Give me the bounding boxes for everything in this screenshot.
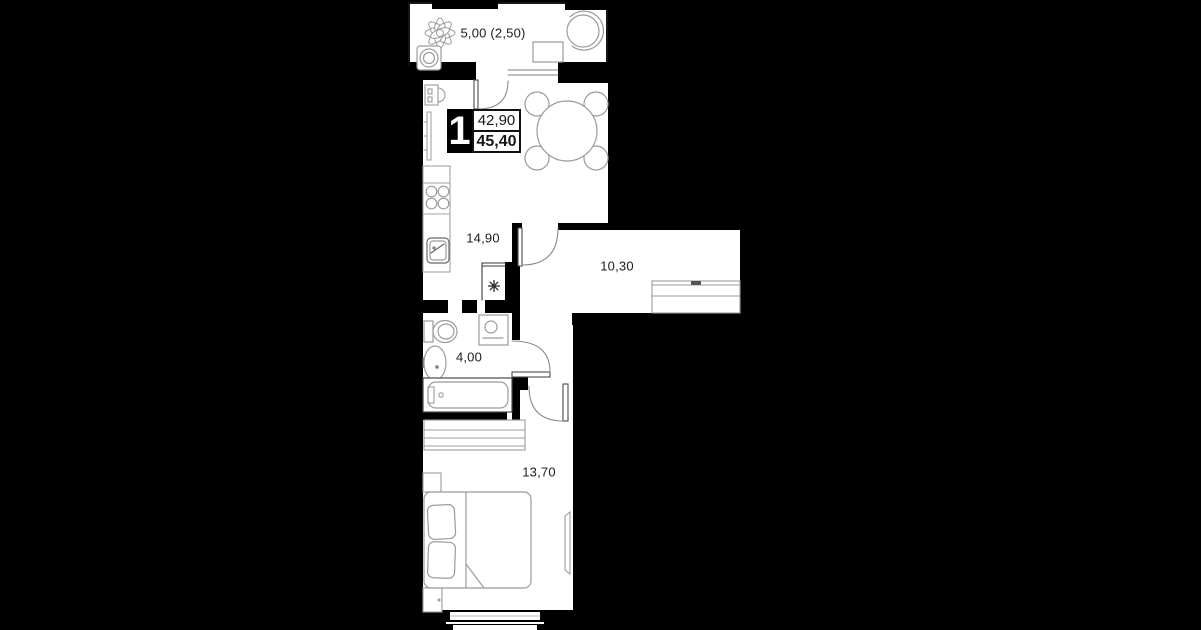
duct-slit [448,300,462,313]
wall-segment [415,412,507,420]
wall-segment [565,0,609,10]
bathroom-area-label: 4,00 [456,350,482,365]
wall-segment [512,377,528,390]
area-value-bottom: 45,40 [474,130,519,151]
wall-segment [572,313,748,325]
bedroom-window [450,612,540,620]
window-sill [453,625,537,630]
area-value-top: 42,90 [474,111,519,130]
bedroom-area-label: 13,70 [522,465,556,480]
apartment-number: 1 [447,109,472,153]
wall-segment [415,62,423,630]
hallway-area-label: 10,30 [600,259,634,274]
bathroom-door-opening [512,340,520,375]
duct-slit [477,300,485,313]
wall-segment [415,300,520,313]
apartment-badge: 1 42,90 45,40 [447,109,521,153]
bedroom-floor [423,390,573,627]
corridor-floor [520,230,573,390]
wall-segment [512,230,520,340]
wall-segment [505,262,512,303]
kitchen-living-area-label: 14,90 [466,231,500,246]
balcony-area-label: 5,00 (2,50) [460,26,525,41]
window-sill-line [446,622,544,624]
floor-plan: 1 42,90 45,40 5,00 (2,50) 14,90 10,30 4,… [0,0,1201,630]
wall-segment [432,0,498,9]
apartment-areas: 42,90 45,40 [472,109,521,153]
wall-segment [558,62,608,83]
